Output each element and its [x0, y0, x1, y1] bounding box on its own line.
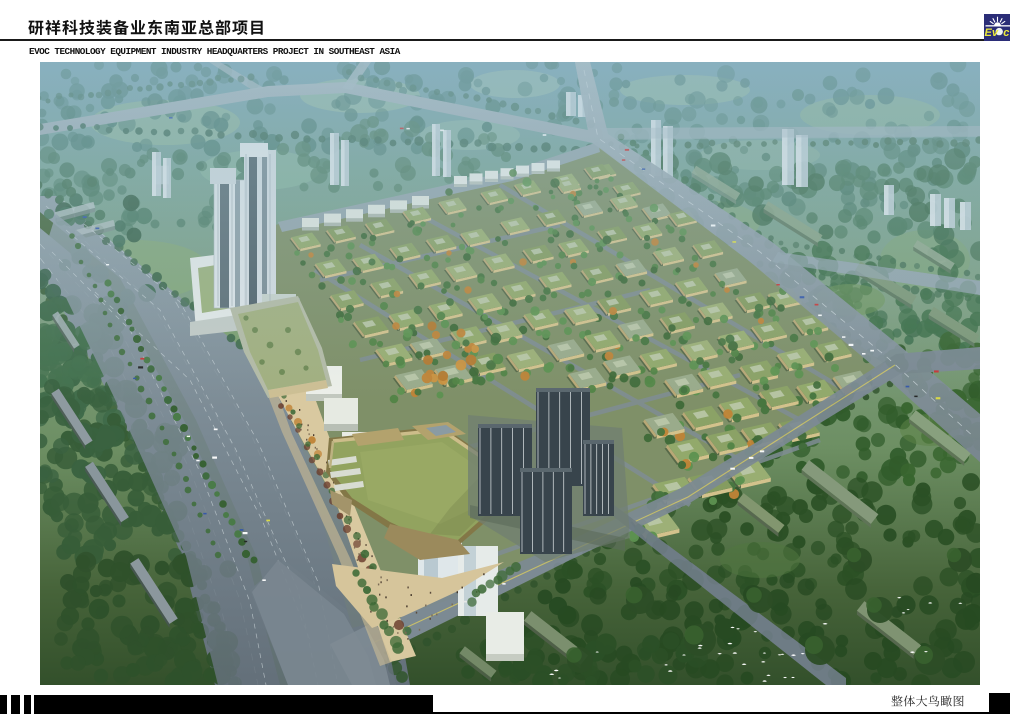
svg-text:c: c: [1003, 27, 1009, 39]
svg-text:Ev: Ev: [985, 27, 999, 39]
